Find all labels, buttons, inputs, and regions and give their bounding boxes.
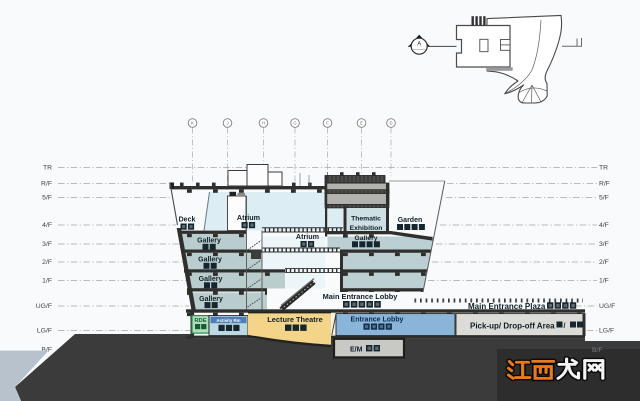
svg-text:Gallery: Gallery xyxy=(197,238,221,245)
svg-text:Atrium: Atrium xyxy=(237,213,260,222)
svg-text:Gallery: Gallery xyxy=(354,235,377,242)
svg-text:D: D xyxy=(389,121,392,126)
svg-text:Main Entrance Plaza: Main Entrance Plaza xyxy=(468,302,546,311)
svg-text:4/F: 4/F xyxy=(42,222,52,229)
svg-text:Thematic: Thematic xyxy=(351,216,381,223)
svg-text:Entrance Lobby: Entrance Lobby xyxy=(351,317,404,324)
svg-text:Pick-up/ Drop-off Area: Pick-up/ Drop-off Area xyxy=(470,322,555,331)
svg-text:TR: TR xyxy=(599,165,608,172)
svg-text:Gallery: Gallery xyxy=(198,257,222,264)
svg-text:Gallery: Gallery xyxy=(199,296,223,303)
svg-text:Gallery: Gallery xyxy=(199,276,223,283)
svg-text:B/F: B/F xyxy=(592,347,603,354)
svg-text:E: E xyxy=(360,121,363,126)
svg-text:Exhibition: Exhibition xyxy=(350,225,383,232)
svg-text:2/F: 2/F xyxy=(42,259,52,266)
svg-text:UG/F: UG/F xyxy=(599,303,615,310)
svg-text:R/F: R/F xyxy=(599,181,610,188)
svg-text:Activity Rm: Activity Rm xyxy=(216,318,240,323)
svg-text:R/F: R/F xyxy=(41,181,52,188)
svg-text:F: F xyxy=(326,121,329,126)
svg-text:J: J xyxy=(226,121,228,126)
svg-text:3/F: 3/F xyxy=(599,241,609,248)
svg-text:5/F: 5/F xyxy=(599,195,609,202)
svg-text:Main Entrance Lobby: Main Entrance Lobby xyxy=(323,292,399,301)
svg-text:4/F: 4/F xyxy=(599,222,609,229)
svg-text:5/F: 5/F xyxy=(42,195,52,202)
svg-text:LG/F: LG/F xyxy=(599,328,614,335)
svg-text:2/F: 2/F xyxy=(599,259,609,266)
svg-text:H: H xyxy=(262,121,265,126)
svg-text:G: G xyxy=(293,121,296,126)
svg-text:K: K xyxy=(191,121,194,126)
svg-text:/: / xyxy=(564,323,566,330)
svg-text:3/F: 3/F xyxy=(42,241,52,248)
svg-text:LG/F: LG/F xyxy=(37,328,52,335)
svg-text:Lecture Theatre: Lecture Theatre xyxy=(267,315,322,324)
svg-text:A: A xyxy=(417,41,421,47)
svg-text:1/F: 1/F xyxy=(599,278,609,285)
svg-text:Atrium: Atrium xyxy=(296,232,319,241)
svg-text:Deck: Deck xyxy=(179,217,196,224)
svg-text:Garden: Garden xyxy=(398,217,423,224)
svg-text:RDE: RDE xyxy=(194,318,206,324)
svg-text:TR: TR xyxy=(43,165,52,172)
svg-text:UG/F: UG/F xyxy=(36,303,52,310)
svg-text:1/F: 1/F xyxy=(42,278,52,285)
svg-text:E/M: E/M xyxy=(350,347,363,354)
